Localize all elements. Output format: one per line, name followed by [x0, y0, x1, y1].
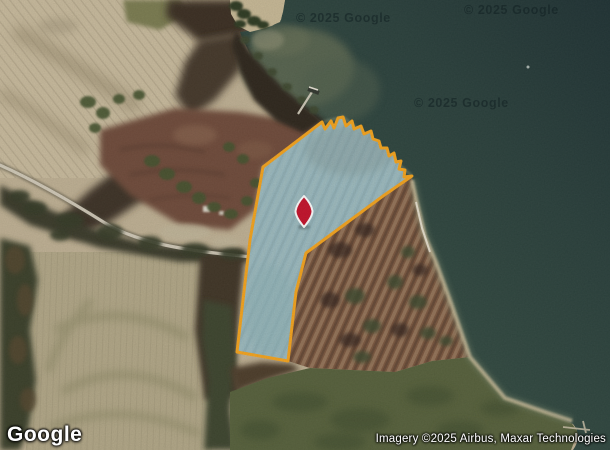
google-logo[interactable]: Google: [7, 423, 82, 447]
grain-overlay: [0, 0, 610, 450]
satellite-imagery: © 2025 Google © 2025 Google © 2025 Googl…: [0, 0, 610, 450]
map-canvas[interactable]: © 2025 Google © 2025 Google © 2025 Googl…: [0, 0, 610, 450]
attribution-text: Imagery ©2025 Airbus, Maxar Technologies: [376, 433, 606, 445]
